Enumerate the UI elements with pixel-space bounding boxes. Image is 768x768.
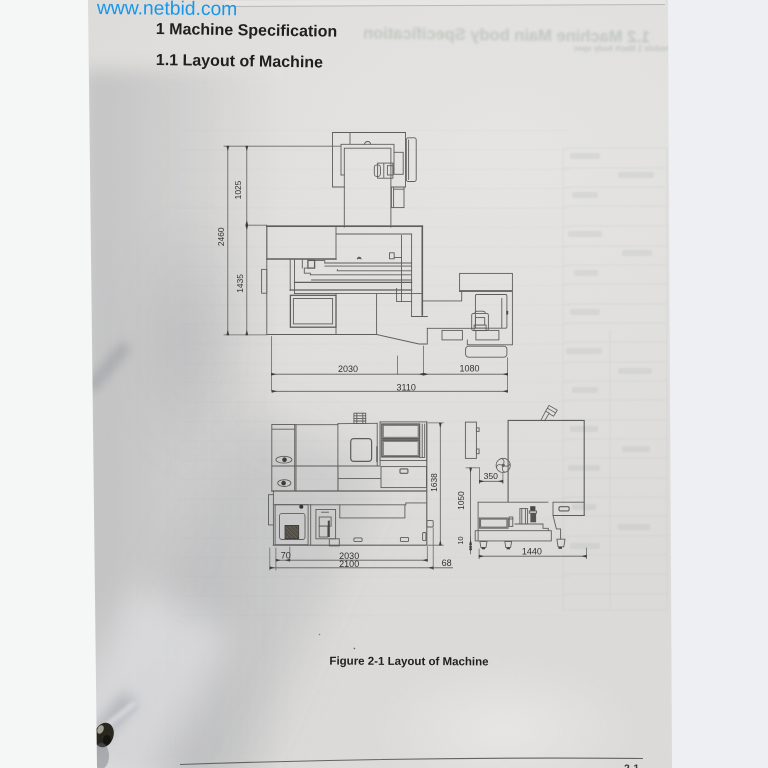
svg-text:2-1: 2-1 (624, 763, 639, 768)
